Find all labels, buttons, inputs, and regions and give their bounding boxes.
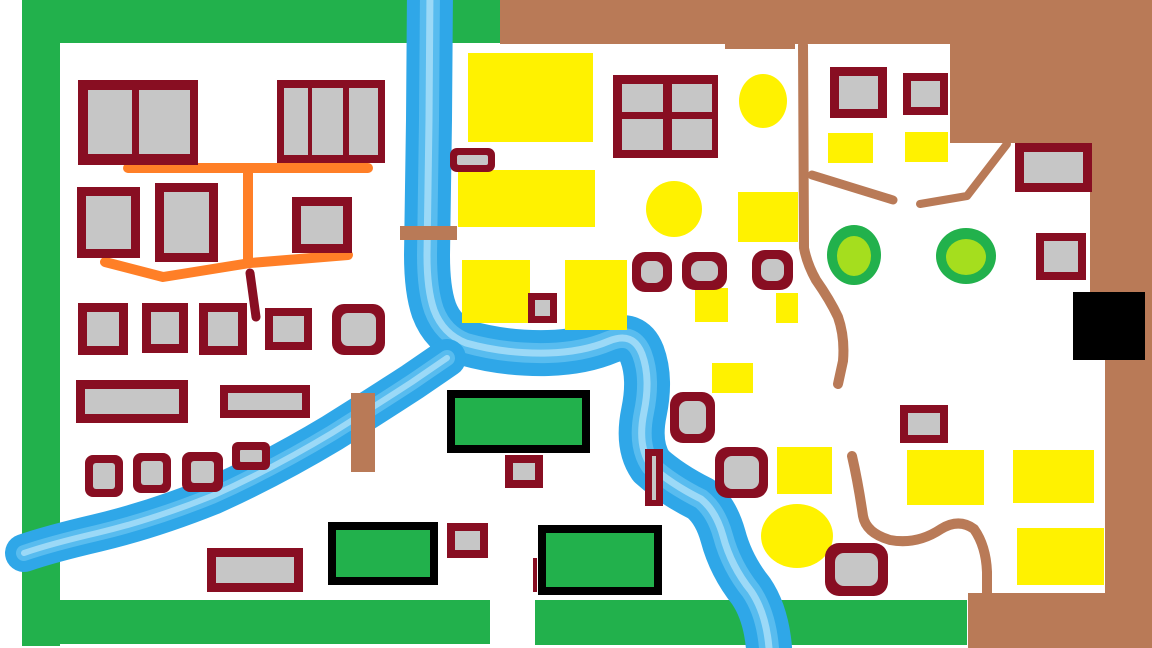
house-07-pane-1 [151,312,179,344]
house-27-pane-1 [835,553,878,586]
house-01-pane-2 [139,90,190,154]
field-7 [776,293,798,323]
house-32-pane-1 [1024,152,1083,183]
bridge-north [400,226,457,240]
house-22-pane-1 [691,261,718,281]
field-12 [907,450,984,505]
field-1 [468,53,593,142]
house-01-pane-1 [88,90,132,154]
pasture-3-pane-1 [546,533,654,587]
road-village-south [105,255,348,277]
field-9 [828,133,873,163]
shed-20-pane-1 [535,300,550,316]
field-8 [712,363,753,393]
house-15-pane-1 [191,461,214,483]
forest-strip-south-west [25,600,490,644]
field-2 [458,170,595,227]
house-14-pane-1 [141,461,163,485]
house-02-pane-1 [284,88,308,155]
house-33-pane-1 [1044,241,1078,272]
hall-12-pane-1 [228,393,302,410]
house-10-pane-1 [341,313,376,346]
house-02-pane-3 [349,88,378,155]
house-08-pane-1 [208,312,238,346]
house-34-pane-1 [908,413,940,435]
house-04-pane-1 [164,192,209,253]
field-3 [462,260,530,323]
tree-2-fill [946,239,986,275]
shed-29-pane-1 [455,531,480,550]
house-02-pane-2 [312,88,343,155]
house-26-pane-1 [724,456,759,489]
house-03-pane-1 [86,196,131,249]
map-canvas [0,0,1152,648]
pasture-2-pane-1 [336,530,430,577]
field-13 [1013,450,1094,503]
manor-19-pane-2 [672,84,712,112]
field-circle-1 [739,74,787,128]
mountain-edge-dip [725,40,795,49]
house-21-pane-1 [641,261,663,283]
field-10 [905,132,948,162]
field-5 [738,192,798,242]
manor-19-pane-3 [622,119,663,150]
field-6 [695,288,728,322]
mine-entrance [1073,292,1145,360]
field-circle-2 [646,181,702,237]
house-09-pane-1 [273,316,304,342]
hall-17-pane-1 [216,557,294,583]
field-4 [565,260,627,330]
trail-east-2 [812,175,893,200]
tree-1-fill [837,236,871,276]
hall-11-pane-1 [85,389,179,414]
shed-18-pane-1 [457,155,488,165]
manor-19-pane-1 [622,84,663,112]
field-11 [777,447,832,494]
manor-19-pane-4 [672,119,712,150]
road-village-stub [250,273,256,317]
field-14 [1017,528,1104,585]
boundary-mark [533,558,537,592]
house-24-pane-1 [679,401,706,434]
lock-25-pane-1 [652,456,656,500]
map-page [0,0,1152,648]
house-13-pane-1 [93,463,115,489]
house-05-pane-1 [301,206,343,244]
house-31-pane-1 [911,81,940,107]
house-30-pane-1 [839,76,878,109]
shed-28-pane-1 [513,463,535,480]
pasture-1-pane-1 [455,398,582,445]
field-circle-3 [761,504,833,568]
house-16-pane-1 [240,450,262,462]
house-06-pane-1 [87,312,119,346]
house-23-pane-1 [761,259,784,281]
bridge-west [351,393,375,472]
